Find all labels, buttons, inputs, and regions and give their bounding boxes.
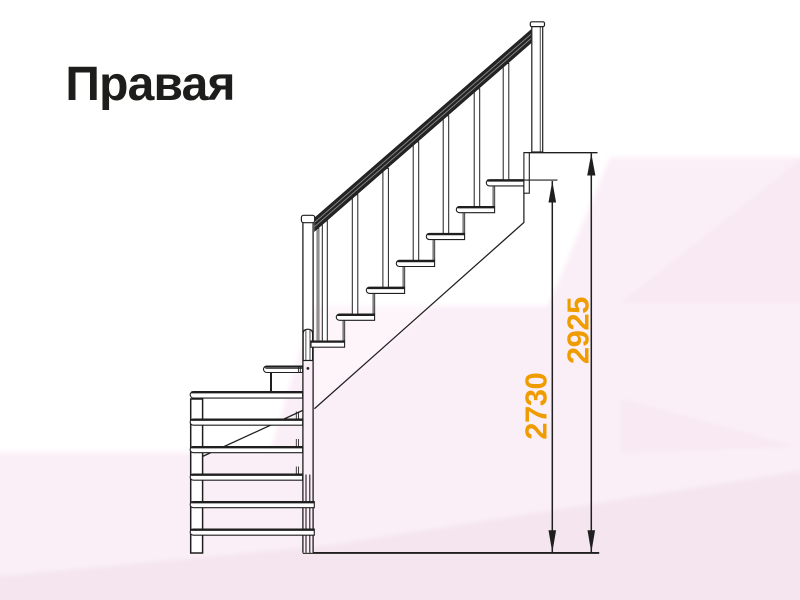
svg-text:2730: 2730 bbox=[519, 373, 554, 440]
svg-text:Правая: Правая bbox=[65, 58, 234, 111]
svg-text:2925: 2925 bbox=[560, 297, 595, 364]
